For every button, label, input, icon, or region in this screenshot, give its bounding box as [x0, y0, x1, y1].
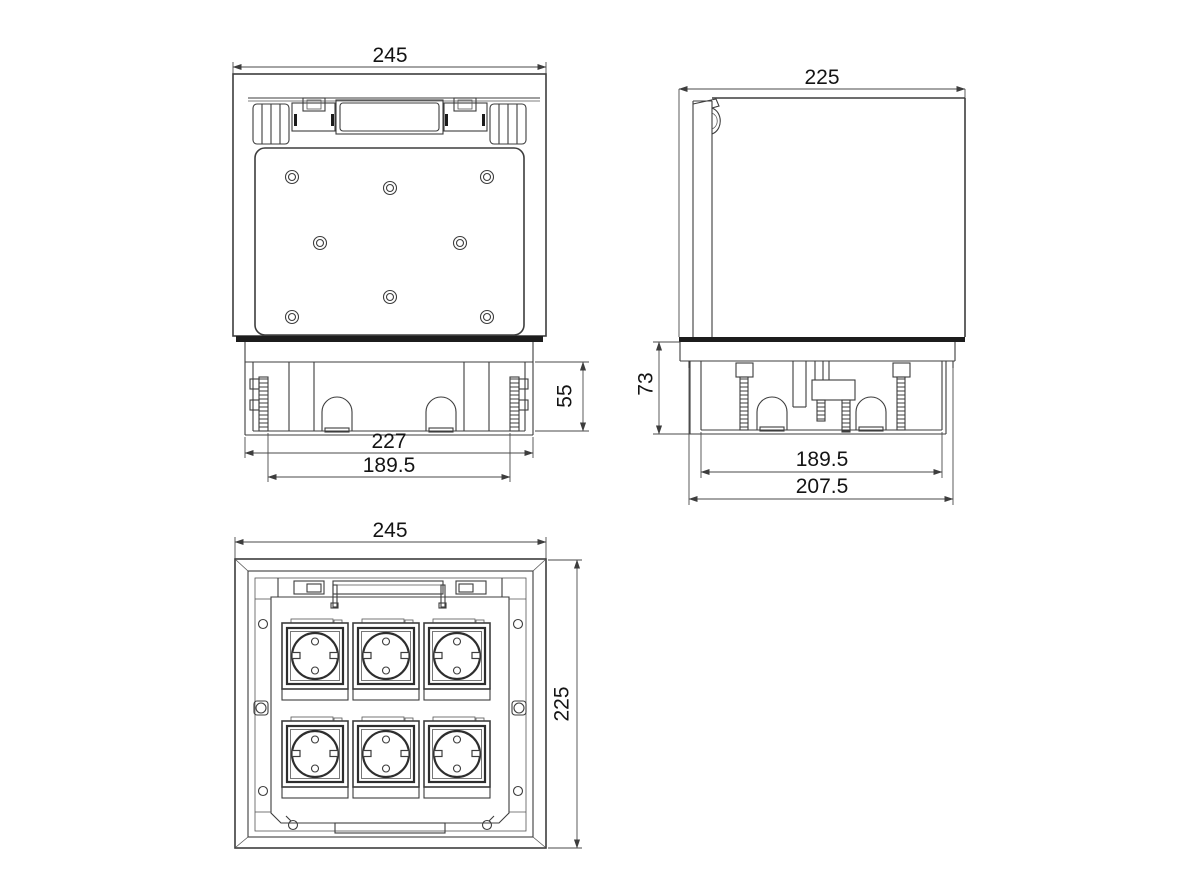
leveling-screw-right	[893, 363, 910, 430]
schuko-socket-6	[424, 717, 490, 798]
dim-label-plan-overall-width: 245	[372, 519, 407, 542]
lift-handle-plan	[331, 581, 446, 608]
dim-label-side-inner-width: 189.5	[796, 448, 849, 471]
schuko-socket-2	[353, 619, 419, 700]
dimension-side-inner-width: 189.5	[701, 432, 942, 478]
dim-label-plan-overall-height: 225	[551, 686, 574, 721]
open-lid	[693, 99, 720, 337]
plan-view: 245 225	[235, 519, 582, 848]
ribbed-block-left	[253, 104, 289, 144]
cable-entry-left	[757, 397, 787, 431]
dimension-side-flange-width: 207.5	[689, 368, 953, 505]
side-view: 225	[635, 66, 965, 505]
lid-recess	[271, 597, 509, 823]
dimension-plan-overall-width: 245	[235, 519, 546, 559]
cable-entry-right	[426, 397, 456, 432]
hinge-knuckle	[712, 108, 720, 134]
frame-screw-hole	[514, 787, 523, 796]
plan-lid-hardware	[294, 581, 486, 608]
dimension-side-box-depth: 73	[635, 342, 690, 434]
floor-socket-box-drawing: 245	[0, 0, 1200, 870]
handle-notch	[335, 823, 445, 833]
latch-clip-left	[294, 581, 324, 597]
pivot-screw	[483, 821, 492, 830]
frame-screw-hole	[259, 787, 268, 796]
hinge-tab	[693, 99, 719, 108]
latch-left	[292, 98, 335, 131]
latch-right	[444, 98, 487, 131]
schuko-socket-4	[282, 717, 348, 798]
dimension-front-overall-width: 245	[233, 44, 546, 74]
latch-mechanism	[793, 361, 855, 432]
front-mounting-box	[245, 342, 533, 435]
frame-screw-hole	[514, 620, 523, 629]
dim-label-side-overall-width: 225	[804, 66, 839, 89]
dim-label-front-box-depth: 55	[554, 384, 577, 407]
dim-label-front-overall-width: 245	[372, 44, 407, 67]
cable-entry-right	[856, 397, 886, 431]
front-cover-plate	[255, 148, 524, 335]
ribbed-block-right	[490, 104, 526, 144]
frame-screw-hole	[259, 620, 268, 629]
lift-handle	[336, 100, 443, 134]
keyhole-left	[254, 701, 268, 715]
dim-label-side-flange-width: 207.5	[796, 475, 849, 498]
front-view: 245	[233, 44, 589, 482]
cable-entry-left	[322, 397, 352, 432]
leveling-screw-left	[736, 363, 753, 430]
socket-grid	[282, 619, 490, 798]
dim-label-side-box-depth: 73	[635, 372, 658, 395]
dimension-plan-overall-height: 225	[548, 560, 582, 848]
side-mounting-box	[680, 342, 955, 434]
schuko-socket-5	[353, 717, 419, 798]
front-lid-hardware	[253, 98, 526, 144]
pivot-screw	[289, 821, 298, 830]
floor-band-front	[236, 336, 543, 342]
dimension-front-box-depth: 55	[535, 362, 589, 431]
dim-label-front-stud-spacing: 189.5	[363, 454, 416, 477]
keyhole-right	[512, 701, 526, 715]
plan-bottom-details	[286, 816, 494, 833]
plate-screws	[286, 171, 494, 324]
floor-band-side	[679, 337, 965, 342]
schuko-socket-3	[424, 619, 490, 700]
technical-drawing-canvas: 245	[0, 0, 1200, 870]
dimension-side-overall-width: 225	[679, 66, 965, 337]
latch-clip-right	[456, 581, 486, 597]
schuko-socket-1	[282, 619, 348, 700]
plan-frame	[235, 559, 546, 848]
side-frame	[712, 98, 965, 337]
dim-label-front-box-width: 227	[371, 430, 406, 453]
